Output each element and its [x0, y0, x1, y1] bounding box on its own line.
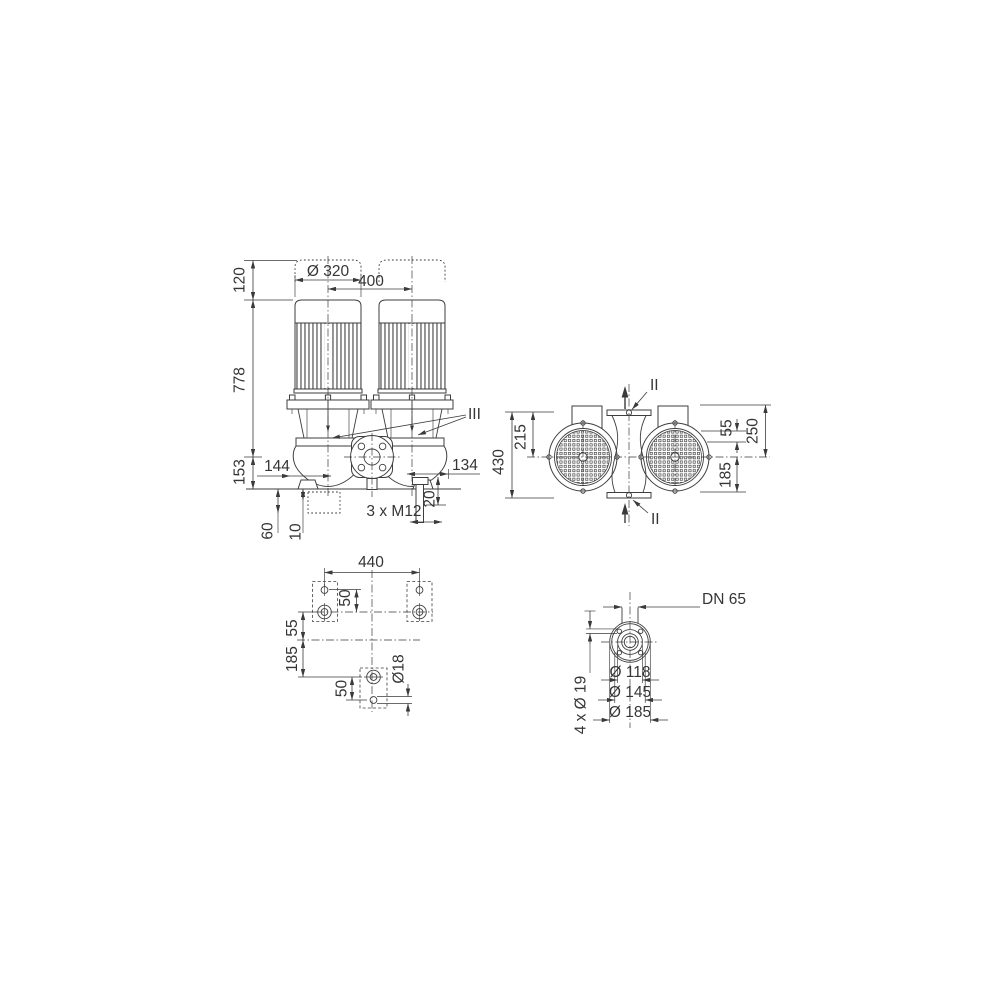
- flow-arrow-top: [622, 386, 629, 409]
- dim-axis-offset: 55: [284, 619, 301, 636]
- dim-hole-pitch-top: 50: [337, 589, 354, 607]
- dim-nominal-diameter: DN 65: [702, 591, 746, 608]
- section-marker-ii-bottom: II: [651, 511, 660, 528]
- top-dimensions: 430 215 55 250 185 II II: [491, 377, 772, 528]
- dim-hole-pitch-bottom: 50: [334, 680, 351, 698]
- motor-fan-right: [639, 406, 711, 494]
- dim-motor-diameter: Ø 320: [307, 263, 350, 280]
- section-marker-ii-top: II: [650, 377, 659, 394]
- dim-cap-height: 120: [232, 267, 249, 293]
- dim-inlet-offset: 144: [264, 458, 290, 475]
- dim-axis-to-edge: 185: [718, 462, 735, 488]
- dim-foot-offset: 20: [422, 490, 439, 508]
- note-foot-thread: 3 x M12: [366, 503, 421, 520]
- dim-bolt-circle-diameter: Ø 145: [609, 684, 651, 701]
- dim-hole-diameter: Ø18: [391, 654, 408, 683]
- note-bolt-holes: 4 x Ø 19: [573, 676, 590, 735]
- dim-pilot-diameter: Ø 118: [609, 664, 650, 681]
- dim-axis-height: 153: [232, 459, 249, 485]
- dim-pump-height: 778: [232, 367, 249, 393]
- dim-axis-to-front: 185: [284, 646, 301, 672]
- dim-bolt-span: 440: [358, 554, 384, 571]
- dim-outlet-offset: 134: [452, 457, 478, 474]
- foundation-block: [308, 492, 340, 513]
- drawing-canvas: 120 Ø 320 400 778 153 144 134 20 3 x M12…: [0, 0, 1000, 1000]
- dim-overall-width: 430: [491, 449, 508, 475]
- dim-motor-spacing: 400: [358, 273, 384, 290]
- dim-outer-diameter: Ø 185: [609, 704, 651, 721]
- flange-dimensions: DN 65 4 x Ø 19 Ø 118 Ø 145 Ø 185: [573, 591, 746, 734]
- top-view: 430 215 55 250 185 II II: [491, 377, 772, 528]
- dim-foundation-depth: 60: [260, 522, 277, 540]
- section-marker-iii: III: [468, 406, 481, 423]
- dim-half-width: 215: [513, 424, 530, 450]
- dim-flange-to-axis: 250: [745, 418, 762, 444]
- flow-arrow-bottom: [622, 503, 629, 523]
- base-view: 440 50 55 185 50 Ø18: [284, 554, 433, 716]
- motor-fan-left: [547, 406, 619, 494]
- flange-view: DN 65 4 x Ø 19 Ø 118 Ø 145 Ø 185: [573, 591, 746, 734]
- center-port-flange: [344, 433, 401, 497]
- front-view: 120 Ø 320 400 778 153 144 134 20 3 x M12…: [232, 256, 481, 541]
- dim-grout-thickness: 10: [288, 523, 305, 541]
- dim-port-offset: 55: [719, 419, 736, 436]
- pump-dimensional-drawing: 120 Ø 320 400 778 153 144 134 20 3 x M12…: [0, 0, 1000, 1000]
- flange-face: [610, 608, 651, 663]
- base-dimensions: 440 50 55 185 50 Ø18: [284, 554, 420, 716]
